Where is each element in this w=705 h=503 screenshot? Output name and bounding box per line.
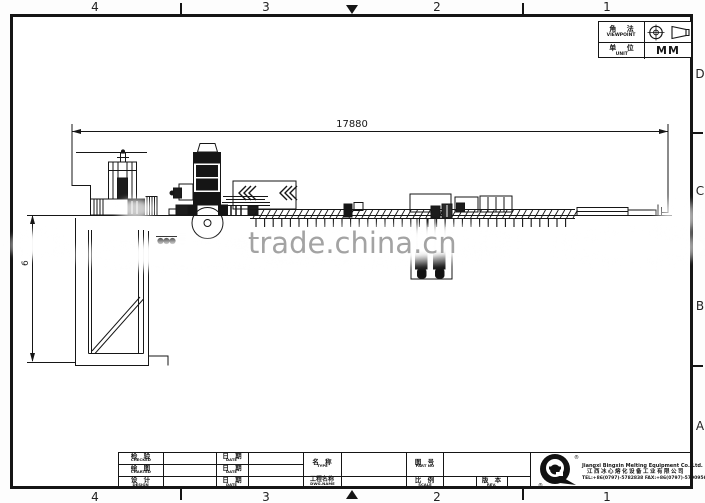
titleblock-date-cell: 日 期 DATE (216, 464, 248, 476)
title-block-line (118, 452, 692, 453)
pit-outline (76, 218, 169, 366)
rev-label-en: REV. (487, 484, 496, 488)
titleblock-scale-cell: 比 例 SCALE (406, 476, 443, 489)
title-block-line (163, 452, 164, 489)
zigzag-symbol (239, 186, 297, 200)
mixer-tower (170, 144, 228, 239)
charted-label-en: CHARTED (130, 471, 150, 475)
titleblock-type-cell: 名 称 TYPE (303, 452, 341, 476)
dimension-text-pit-depth: 6 (21, 260, 31, 266)
titleblock-rev-cell: 版 本 REV. (476, 476, 507, 489)
title-block-line (530, 452, 531, 489)
titleblock-dwgname-cell: 工程名称 DWG.NAME (303, 476, 341, 489)
titleblock-date-cell: 日 期 DATE (216, 452, 248, 464)
company-info: Jiangxi Bingxin Melting Equipment Co.,Lt… (582, 459, 690, 485)
date-label-en: DATE (226, 484, 237, 488)
dwgname-label-en: DWG.NAME (310, 484, 335, 488)
dimension-text-overall: 17880 (336, 119, 368, 130)
conveyor-hatch (253, 210, 578, 218)
date-label-en: DATE (226, 471, 237, 475)
title-block-line (507, 476, 508, 489)
runout-table (577, 205, 668, 216)
type-label-en: TYPE (317, 465, 328, 469)
company-name-zh: 江西冰心熔化设备工业有限公司 (582, 469, 690, 476)
title-block-line (341, 452, 342, 489)
small-equipment (146, 197, 189, 244)
date-label-en: DATE (226, 459, 237, 463)
dimension-overall-length (72, 124, 668, 213)
company-logo: ® ® (536, 452, 580, 488)
company-tel-fax: TEL:+86(0797)-5782838 FAX:+86(0797)-5790… (582, 476, 690, 482)
watermark-text: trade.china.cn (248, 226, 457, 260)
scale-label-en: SCALE (418, 484, 432, 488)
roller-conveyor (250, 203, 578, 228)
title-block-line (248, 452, 249, 489)
titleblock-partno-cell: 图 号 PART NO (406, 452, 443, 476)
registered-mark: ® (538, 482, 543, 488)
batch-elevator-structure (72, 150, 147, 215)
titleblock-charted-cell: 绘 图 CHARTED (118, 464, 163, 476)
design-label-en: DESIGN (132, 484, 148, 488)
drawing-sheet: 4 3 2 1 4 3 2 1 D C B A 角 法 VIEWPOINT (0, 0, 705, 503)
titleblock-design-cell: 设 计 DESIGN (118, 476, 163, 489)
checked-label-en: CHECKED (130, 459, 150, 463)
registered-mark: ® (574, 454, 579, 461)
titleblock-date-cell: 日 期 DATE (216, 476, 248, 489)
dimension-pit-depth (27, 215, 76, 363)
titleblock-checked-cell: 检 验 CHECKED (118, 452, 163, 464)
partno-label-en: PART NO (415, 465, 434, 469)
title-block-line (443, 452, 444, 489)
